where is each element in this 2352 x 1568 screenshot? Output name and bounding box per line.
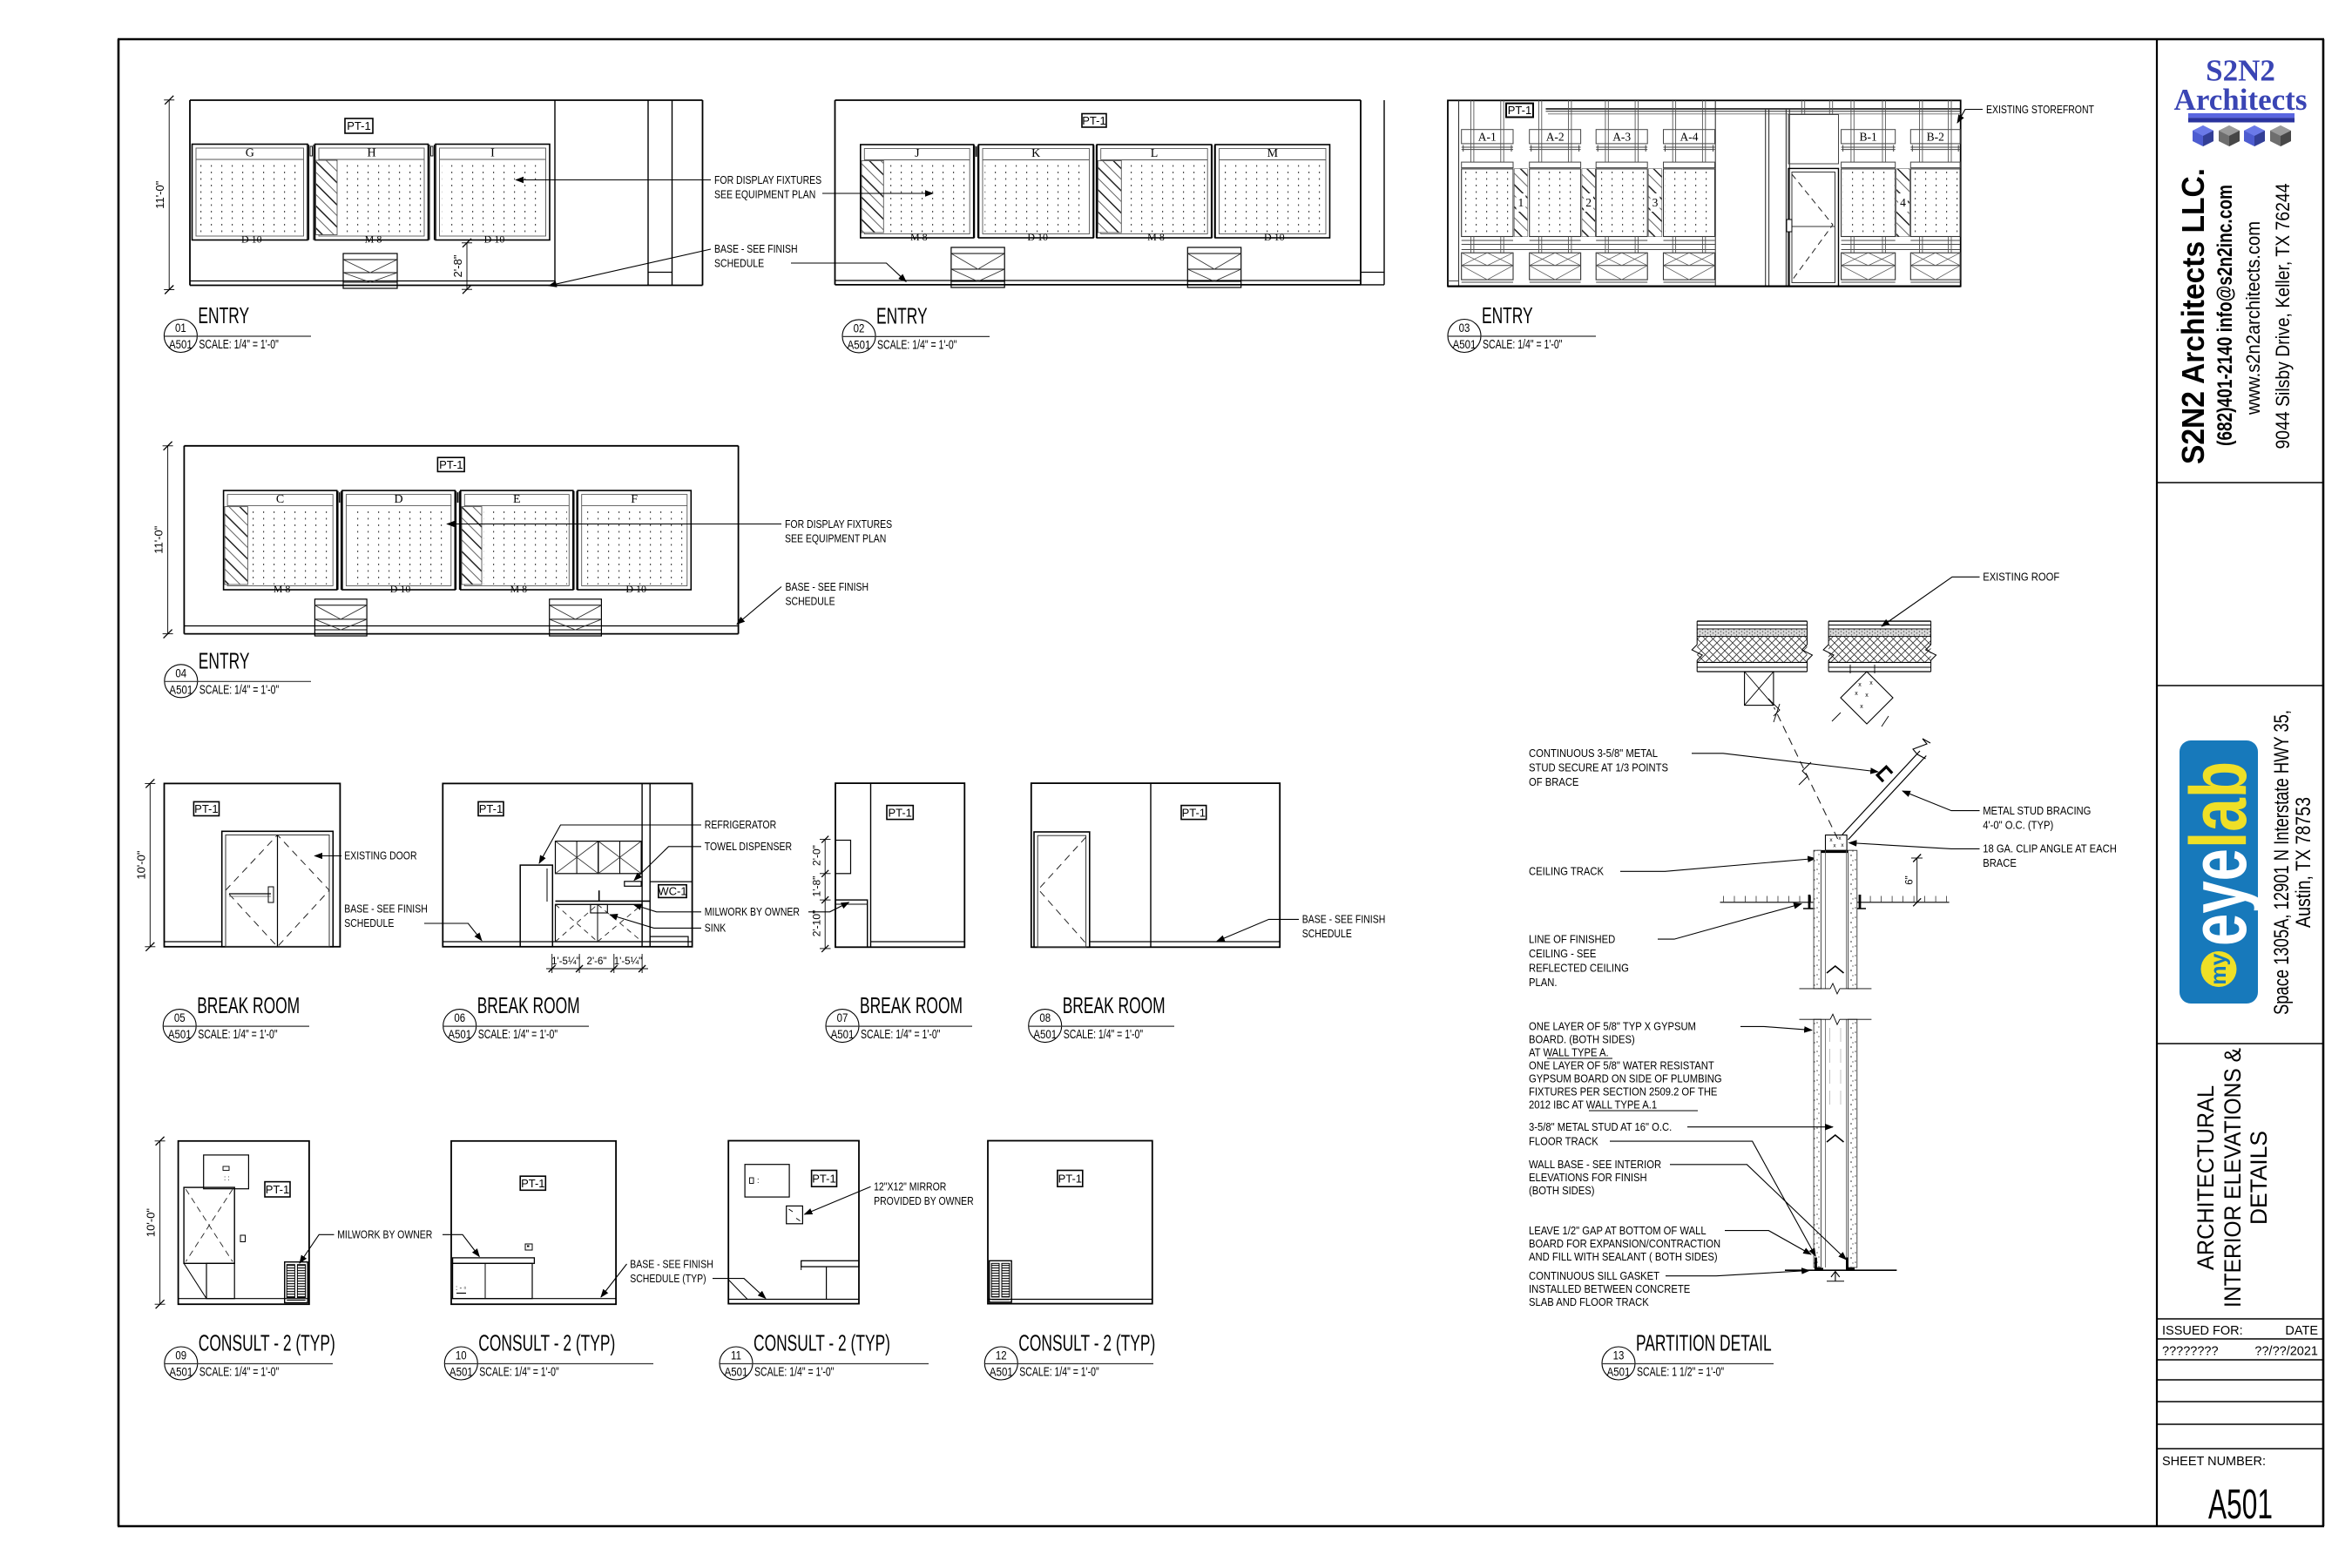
svg-text:FLOOR TRACK: FLOOR TRACK — [1529, 1135, 1598, 1148]
svg-text:CONSULT - 2 (TYP): CONSULT - 2 (TYP) — [478, 1330, 615, 1355]
svg-text:ONE LAYER OF 5/8" WATER RESIST: ONE LAYER OF 5/8" WATER RESISTANT — [1529, 1059, 1714, 1072]
svg-text:x: x — [1858, 682, 1862, 688]
svg-text:2: 2 — [1585, 196, 1592, 209]
svg-text:A501: A501 — [990, 1366, 1013, 1379]
svg-text:M 8: M 8 — [510, 583, 527, 595]
svg-text:SCALE: 1/4" = 1'-0": SCALE: 1/4" = 1'-0" — [199, 681, 280, 696]
svg-text:CONSULT - 2 (TYP): CONSULT - 2 (TYP) — [1018, 1330, 1155, 1355]
svg-text:BOARD. (BOTH SIDES): BOARD. (BOTH SIDES) — [1529, 1033, 1635, 1046]
svg-text:CONTINUOUS SILL GASKET: CONTINUOUS SILL GASKET — [1529, 1269, 1659, 1282]
svg-text:12: 12 — [996, 1349, 1007, 1362]
svg-text:AT WALL TYPE A.: AT WALL TYPE A. — [1529, 1046, 1609, 1059]
svg-text:BREAK ROOM: BREAK ROOM — [860, 993, 963, 1018]
svg-text:eye: eye — [2174, 848, 2263, 946]
svg-text:PT-1: PT-1 — [1058, 1173, 1082, 1186]
svg-text:E: E — [513, 493, 521, 506]
svg-text:08: 08 — [1039, 1011, 1051, 1024]
svg-text:ENTRY: ENTRY — [1482, 303, 1533, 328]
svg-text:A-3: A-3 — [1612, 131, 1631, 144]
svg-text:G: G — [246, 147, 254, 160]
svg-text:x: x — [1865, 693, 1869, 699]
svg-text:SINK: SINK — [705, 923, 727, 935]
svg-text:SHEET NUMBER:: SHEET NUMBER: — [2162, 1455, 2266, 1469]
svg-text:A501: A501 — [448, 1028, 471, 1041]
svg-text:my: my — [2207, 953, 2231, 984]
svg-text:: :: : : — [224, 1174, 230, 1182]
svg-text:D 10: D 10 — [1264, 231, 1285, 243]
svg-text:06: 06 — [454, 1011, 465, 1024]
svg-text:A501: A501 — [1033, 1028, 1057, 1041]
svg-text:FIXTURES PER SECTION 2509.2 OF: FIXTURES PER SECTION 2509.2 OF THE — [1529, 1085, 1717, 1098]
svg-text:SCALE: 1/4" = 1'-0": SCALE: 1/4" = 1'-0" — [877, 336, 957, 351]
svg-text:C: C — [276, 493, 284, 506]
svg-text:2012 IBC AT WALL TYPE A.1: 2012 IBC AT WALL TYPE A.1 — [1529, 1098, 1658, 1112]
svg-text:BASE - SEE FINISH: BASE - SEE FINISH — [714, 244, 798, 255]
svg-text:M: M — [1267, 147, 1279, 160]
svg-text:SCHEDULE: SCHEDULE — [344, 918, 394, 929]
svg-text:SCHEDULE: SCHEDULE — [714, 259, 764, 270]
svg-text:(682)401-2140 info@s2n2inc.com: (682)401-2140 info@s2n2inc.com — [2213, 185, 2237, 446]
svg-text:SCALE: 1/4" = 1'-0": SCALE: 1/4" = 1'-0" — [1019, 1364, 1099, 1379]
svg-text:FOR DISPLAY FIXTURES: FOR DISPLAY FIXTURES — [714, 175, 821, 186]
svg-text:Austin, TX 78753: Austin, TX 78753 — [2292, 797, 2315, 928]
svg-text:LINE OF FINISHED: LINE OF FINISHED — [1529, 933, 1615, 946]
svg-text:STUD SECURE AT 1/3 POINTS: STUD SECURE AT 1/3 POINTS — [1529, 761, 1668, 774]
svg-text:D 10: D 10 — [1027, 231, 1048, 243]
svg-text:04: 04 — [175, 666, 186, 679]
svg-text:SCALE: 1/4" = 1'-0": SCALE: 1/4" = 1'-0" — [199, 1364, 280, 1379]
svg-text:BOARD FOR EXPANSION/CONTRACTIO: BOARD FOR EXPANSION/CONTRACTION — [1529, 1237, 1720, 1250]
svg-text:05: 05 — [174, 1011, 186, 1024]
svg-text:2'-6": 2'-6" — [587, 956, 607, 967]
svg-text:CONTINUOUS 3-5/8" METAL: CONTINUOUS 3-5/8" METAL — [1529, 747, 1658, 760]
svg-text:D: D — [395, 493, 403, 506]
svg-text:1'-5¼": 1'-5¼" — [614, 956, 643, 967]
svg-text:PROVIDED BY OWNER: PROVIDED BY OWNER — [874, 1196, 974, 1207]
svg-text:10'-0": 10'-0" — [134, 850, 147, 880]
svg-text:SLAB AND FLOOR TRACK: SLAB AND FLOOR TRACK — [1529, 1295, 1649, 1308]
svg-text:A501: A501 — [169, 683, 193, 696]
svg-text:x: x — [1860, 704, 1863, 710]
svg-text:AND FILL WITH SEALANT ( BOTH S: AND FILL WITH SEALANT ( BOTH SIDES) — [1529, 1250, 1718, 1263]
svg-text:SCALE: 1/4" = 1'-0": SCALE: 1/4" = 1'-0" — [1064, 1026, 1144, 1041]
svg-text:PT-1: PT-1 — [1182, 806, 1206, 819]
svg-text:D 10: D 10 — [625, 583, 646, 595]
svg-text:BASE - SEE FINISH: BASE - SEE FINISH — [630, 1260, 713, 1271]
svg-text:DETAILS: DETAILS — [2246, 1131, 2272, 1225]
svg-text:SCALE: 1/4" = 1'-0": SCALE: 1/4" = 1'-0" — [478, 1026, 558, 1041]
svg-text:BRACE: BRACE — [1983, 857, 2017, 870]
svg-text:(BOTH SIDES): (BOTH SIDES) — [1529, 1184, 1595, 1197]
svg-text:lab: lab — [2174, 761, 2263, 848]
svg-text:6": 6" — [1905, 875, 1916, 884]
svg-text:M 8: M 8 — [365, 233, 382, 246]
svg-text:BASE - SEE FINISH: BASE - SEE FINISH — [786, 582, 869, 593]
svg-text:J: J — [915, 147, 920, 160]
svg-text:CONSULT - 2 (TYP): CONSULT - 2 (TYP) — [754, 1330, 890, 1355]
svg-text:13: 13 — [1613, 1349, 1625, 1362]
svg-text:SCALE: 1/4" = 1'-0": SCALE: 1/4" = 1'-0" — [199, 336, 279, 351]
svg-text:Architects: Architects — [2174, 83, 2308, 117]
svg-text:BREAK ROOM: BREAK ROOM — [1063, 993, 1166, 1018]
svg-text:SCHEDULE (TYP): SCHEDULE (TYP) — [630, 1274, 706, 1285]
svg-text:2'-0": 2'-0" — [811, 845, 823, 866]
svg-text:MILWORK BY OWNER: MILWORK BY OWNER — [337, 1230, 432, 1241]
svg-text:ONE LAYER OF 5/8" TYP X GYPSUM: ONE LAYER OF 5/8" TYP X GYPSUM — [1529, 1020, 1696, 1033]
svg-text:11'-0": 11'-0" — [153, 180, 166, 209]
svg-text:PT-1: PT-1 — [479, 802, 503, 815]
svg-text:PT-1: PT-1 — [888, 806, 911, 819]
svg-text:: - ▫: : - ▫ — [456, 1284, 466, 1292]
svg-text:02: 02 — [854, 322, 865, 335]
svg-text:PARTITION DETAIL: PARTITION DETAIL — [1636, 1330, 1772, 1355]
svg-text:CONSULT - 2 (TYP): CONSULT - 2 (TYP) — [199, 1330, 335, 1355]
svg-text:????????: ???????? — [2162, 1345, 2219, 1359]
svg-text:www.s2n2architects.com: www.s2n2architects.com — [2242, 221, 2264, 416]
svg-text:12"X12" MIRROR: 12"X12" MIRROR — [874, 1182, 946, 1193]
svg-text:2'-10": 2'-10" — [811, 910, 823, 937]
svg-text:PT-1: PT-1 — [1082, 114, 1105, 127]
svg-text:A501: A501 — [848, 339, 871, 352]
svg-text:PT-1: PT-1 — [521, 1177, 544, 1190]
svg-text:EXISTING DOOR: EXISTING DOOR — [344, 851, 416, 862]
svg-text:WC-1: WC-1 — [658, 885, 686, 898]
svg-text:H: H — [367, 147, 375, 160]
svg-text:SCHEDULE: SCHEDULE — [1302, 929, 1352, 940]
svg-text:CEILING - SEE: CEILING - SEE — [1529, 947, 1596, 960]
svg-text:Space 1305A, 12901 N Interstat: Space 1305A, 12901 N Interstate HWY 35, — [2270, 710, 2294, 1015]
svg-text:A501: A501 — [449, 1366, 473, 1379]
svg-text:A501: A501 — [169, 338, 193, 351]
svg-text:ELEVATIONS FOR FINISH: ELEVATIONS FOR FINISH — [1529, 1171, 1647, 1184]
svg-text:REFRIGERATOR: REFRIGERATOR — [705, 820, 776, 831]
svg-text:MILWORK BY OWNER: MILWORK BY OWNER — [705, 907, 800, 918]
svg-text:I: I — [490, 147, 495, 160]
svg-text:B-2: B-2 — [1927, 131, 1944, 144]
svg-text:OF BRACE: OF BRACE — [1529, 775, 1579, 788]
svg-text:SCALE: 1/4" = 1'-0": SCALE: 1/4" = 1'-0" — [1483, 336, 1563, 351]
svg-text:SCALE: 1/4" = 1'-0": SCALE: 1/4" = 1'-0" — [754, 1364, 835, 1379]
svg-text:PT-1: PT-1 — [1508, 104, 1531, 117]
svg-text:2'-8": 2'-8" — [451, 254, 464, 277]
svg-text:S2N2 Architects LLC.: S2N2 Architects LLC. — [2175, 168, 2211, 464]
svg-text:10: 10 — [456, 1349, 467, 1362]
svg-text:A501: A501 — [169, 1366, 193, 1379]
svg-text:PLAN.: PLAN. — [1529, 976, 1557, 989]
svg-text:B-1: B-1 — [1859, 131, 1876, 144]
svg-text:PT-1: PT-1 — [194, 802, 218, 815]
svg-text:SCALE: 1/4" = 1'-0": SCALE: 1/4" = 1'-0" — [479, 1364, 559, 1379]
svg-text:SCALE: 1 1/2" = 1'-0": SCALE: 1 1/2" = 1'-0" — [1637, 1364, 1724, 1379]
svg-text:TOWEL DISPENSER: TOWEL DISPENSER — [705, 841, 792, 853]
svg-text:INTERIOR ELEVATIONS &: INTERIOR ELEVATIONS & — [2220, 1048, 2246, 1308]
svg-text:3-5/8" METAL STUD AT 16" O.C.: 3-5/8" METAL STUD AT 16" O.C. — [1529, 1120, 1672, 1133]
svg-text:BREAK ROOM: BREAK ROOM — [477, 993, 580, 1018]
svg-text:EXISTING ROOF: EXISTING ROOF — [1983, 571, 2059, 584]
svg-text:09: 09 — [175, 1349, 186, 1362]
svg-text:REFLECTED CEILING: REFLECTED CEILING — [1529, 962, 1629, 975]
svg-text:D 10: D 10 — [484, 233, 505, 246]
svg-text:18 GA. CLIP ANGLE AT EACH: 18 GA. CLIP ANGLE AT EACH — [1983, 842, 2117, 855]
svg-text:ARCHITECTURAL: ARCHITECTURAL — [2193, 1085, 2219, 1270]
svg-text:D 10: D 10 — [390, 583, 411, 595]
svg-text:M 8: M 8 — [274, 583, 291, 595]
svg-text:x: x — [1869, 680, 1873, 686]
svg-text:A501: A501 — [2208, 1480, 2273, 1527]
svg-text:D 10: D 10 — [241, 233, 262, 246]
svg-text::: : — [757, 1176, 760, 1185]
svg-text:EXISTING STOREFRONT: EXISTING STOREFRONT — [1986, 105, 2094, 116]
svg-text:LEAVE 1/2" GAP AT BOTTOM OF WA: LEAVE 1/2" GAP AT BOTTOM OF WALL — [1529, 1224, 1707, 1237]
svg-text:BASE - SEE FINISH: BASE - SEE FINISH — [1302, 915, 1386, 926]
svg-text:11'-0": 11'-0" — [152, 525, 166, 554]
svg-text:A-1: A-1 — [1478, 131, 1497, 144]
svg-text:PT-1: PT-1 — [812, 1173, 835, 1186]
svg-text:11: 11 — [731, 1349, 741, 1362]
svg-text:A-2: A-2 — [1546, 131, 1565, 144]
svg-text:A501: A501 — [1607, 1366, 1631, 1379]
svg-text:ENTRY: ENTRY — [198, 303, 249, 328]
svg-text:BREAK ROOM: BREAK ROOM — [197, 993, 300, 1018]
svg-text:FOR DISPLAY FIXTURES: FOR DISPLAY FIXTURES — [785, 519, 892, 531]
svg-text:1: 1 — [1518, 196, 1524, 209]
svg-text:WALL BASE - SEE INTERIOR: WALL BASE - SEE INTERIOR — [1529, 1158, 1662, 1171]
svg-text:1'-8": 1'-8" — [811, 876, 823, 897]
svg-text:3: 3 — [1652, 196, 1659, 209]
svg-text:10'-0": 10'-0" — [145, 1208, 158, 1238]
svg-text:4: 4 — [1900, 196, 1906, 209]
svg-text:SEE EQUIPMENT PLAN: SEE EQUIPMENT PLAN — [785, 534, 886, 545]
svg-text:GYPSUM BOARD ON SIDE OF PLUMBI: GYPSUM BOARD ON SIDE OF PLUMBING — [1529, 1072, 1722, 1085]
svg-text:PT-1: PT-1 — [266, 1183, 289, 1196]
svg-text:1'-5¼": 1'-5¼" — [551, 956, 580, 967]
svg-text:M 8: M 8 — [910, 231, 928, 243]
svg-text:4'-0" O.C. (TYP): 4'-0" O.C. (TYP) — [1983, 819, 2053, 832]
svg-text:SCALE: 1/4" = 1'-0": SCALE: 1/4" = 1'-0" — [861, 1026, 941, 1041]
svg-text:PT-1: PT-1 — [439, 458, 463, 471]
svg-text:07: 07 — [837, 1011, 848, 1024]
svg-text:A501: A501 — [831, 1028, 855, 1041]
svg-text:A501: A501 — [725, 1366, 748, 1379]
svg-text:9044 Silsby Drive, Keller, TX: 9044 Silsby Drive, Keller, TX 76244 — [2272, 184, 2294, 449]
svg-text:01: 01 — [175, 321, 186, 335]
svg-text:A501: A501 — [168, 1028, 192, 1041]
svg-text:??/??/2021: ??/??/2021 — [2254, 1345, 2318, 1359]
svg-text:A-4: A-4 — [1680, 131, 1699, 144]
svg-text:INSTALLED BETWEEN CONCRETE: INSTALLED BETWEEN CONCRETE — [1529, 1282, 1690, 1295]
svg-text:F: F — [631, 493, 638, 506]
svg-text:M 8: M 8 — [1147, 231, 1165, 243]
svg-text:x: x — [1855, 691, 1858, 697]
svg-text:ENTRY: ENTRY — [876, 303, 928, 328]
svg-text:ENTRY: ENTRY — [199, 648, 250, 673]
svg-text:SEE EQUIPMENT PLAN: SEE EQUIPMENT PLAN — [714, 190, 815, 201]
svg-text:A501: A501 — [1453, 338, 1477, 351]
svg-text:ISSUED FOR:: ISSUED FOR: — [2162, 1324, 2243, 1338]
svg-text:K: K — [1031, 147, 1040, 160]
svg-text:DATE: DATE — [2285, 1324, 2318, 1338]
svg-text:CEILING TRACK: CEILING TRACK — [1529, 865, 1604, 878]
svg-text:SCHEDULE: SCHEDULE — [786, 597, 835, 608]
svg-text:03: 03 — [1459, 321, 1470, 335]
svg-text:SCALE: 1/4" = 1'-0": SCALE: 1/4" = 1'-0" — [198, 1026, 278, 1041]
svg-text:BASE - SEE FINISH: BASE - SEE FINISH — [344, 904, 428, 916]
svg-text:METAL STUD BRACING: METAL STUD BRACING — [1983, 804, 2091, 817]
svg-text:L: L — [1151, 147, 1159, 160]
svg-text:PT-1: PT-1 — [347, 119, 370, 132]
